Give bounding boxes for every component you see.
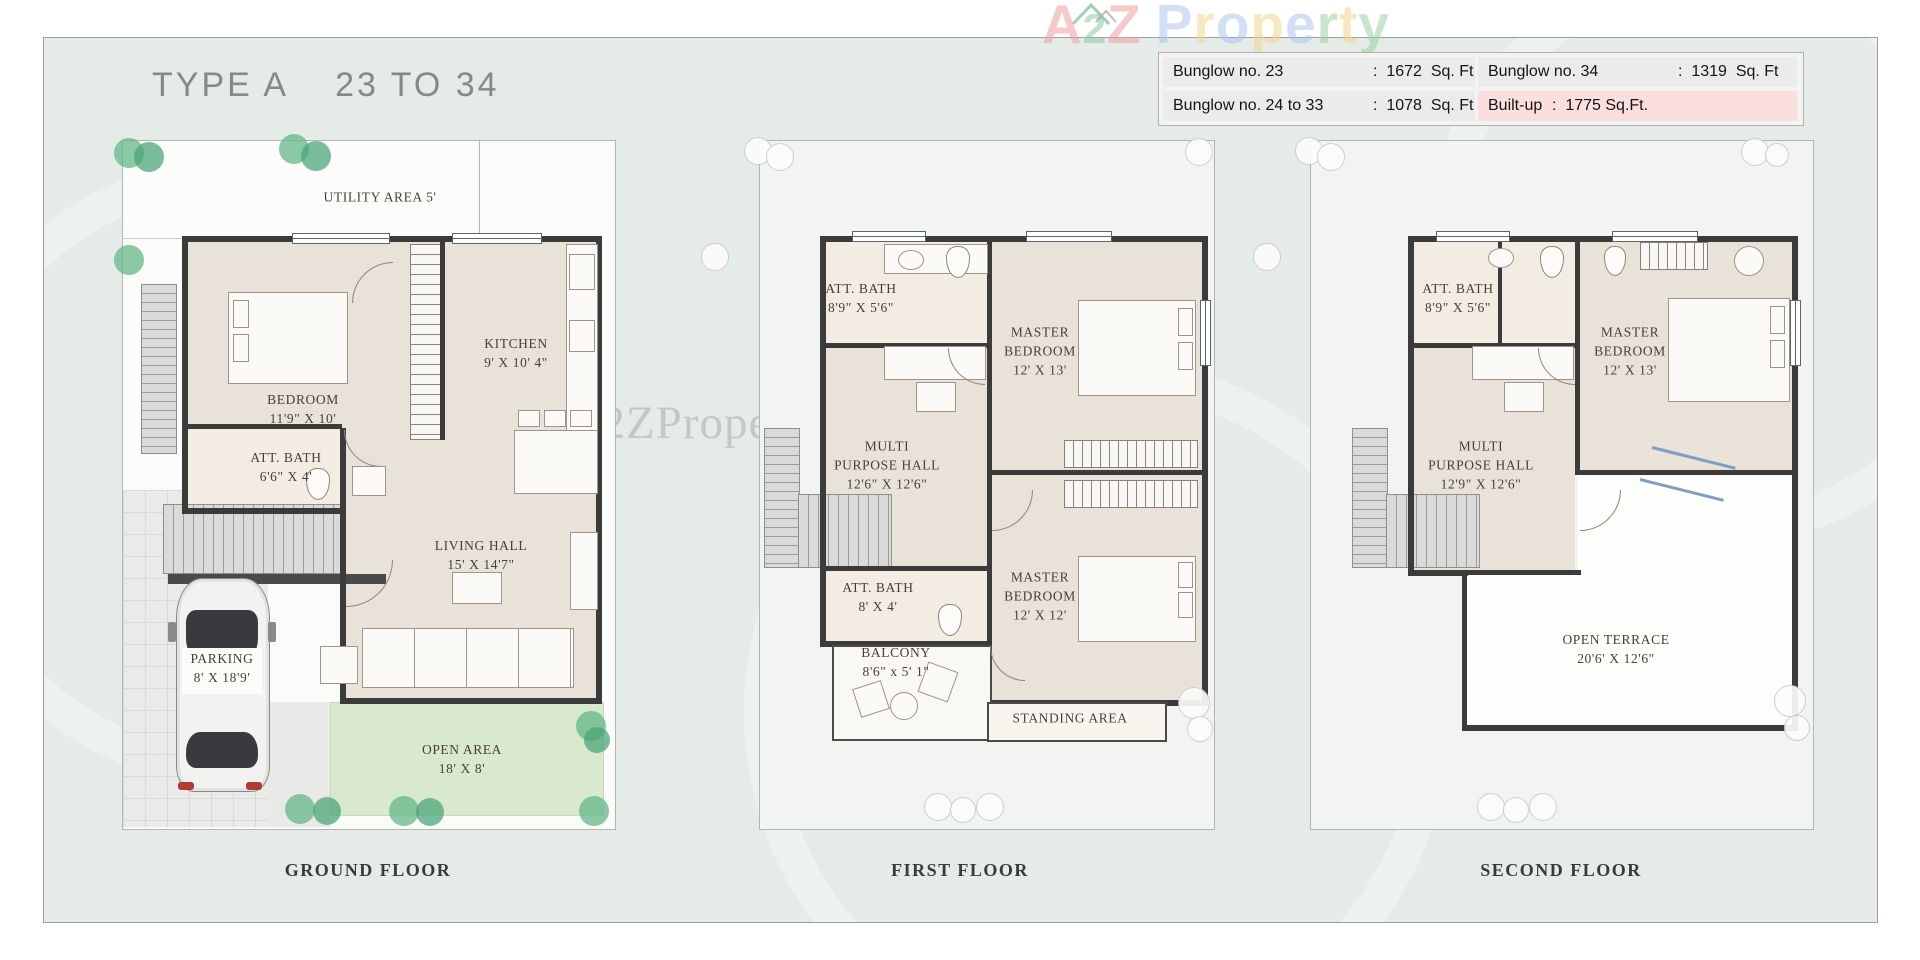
- tv-unit: [570, 532, 598, 610]
- wash-basin: [898, 250, 924, 270]
- room-label-balcony: BALCONY8'6" x 5' 1": [861, 644, 930, 682]
- room-label-open-terrace: OPEN TERRACE20'6' X 12'6": [1562, 631, 1669, 669]
- caption-first-floor: FIRST FLOOR: [891, 860, 1029, 881]
- car-mirror: [168, 622, 176, 642]
- wall: [440, 242, 445, 440]
- dining-chair: [518, 410, 540, 427]
- table-cell-bunglow-24-33: Bunglow no. 24 to 33: 1078 Sq. Ft: [1163, 91, 1475, 121]
- kitchen-sink: [569, 254, 595, 290]
- ottoman: [320, 646, 358, 684]
- logo-letter: y: [1358, 0, 1390, 55]
- cell-label: Bunglow no. 24 to 33: [1173, 97, 1373, 115]
- room-label-parking: PARKING8' X 18'9': [191, 650, 254, 688]
- window: [1436, 231, 1510, 242]
- entry-staircase: [163, 504, 343, 574]
- caption-second-floor: SECOND FLOOR: [1480, 860, 1642, 881]
- stove: [569, 320, 595, 352]
- cell-value: : 1775 Sq.Ft.: [1552, 97, 1648, 115]
- room-label-multi-purpose-hall: MULTIPURPOSE HALL12'6" X 12'6": [834, 438, 940, 495]
- room-label-living-hall: LIVING HALL15' X 14'7": [435, 537, 527, 575]
- cell-value: : 1078 Sq. Ft: [1373, 97, 1474, 115]
- tree-marker: [114, 245, 144, 275]
- staircase: [764, 428, 800, 568]
- shrub-marker: [1774, 685, 1806, 717]
- wall: [824, 566, 990, 571]
- cell-value: : 1319 Sq. Ft: [1678, 63, 1779, 81]
- dining-chair: [570, 410, 592, 427]
- logo-letter: P: [1156, 0, 1194, 55]
- shrub-marker: [1765, 143, 1789, 167]
- window: [1790, 300, 1801, 366]
- coffee-table: [452, 572, 502, 604]
- logo-letter: r: [1193, 0, 1215, 55]
- pillow: [1178, 342, 1193, 370]
- wall: [1408, 236, 1414, 576]
- shrub-marker: [976, 793, 1004, 821]
- caption-ground-floor: GROUND FLOOR: [285, 860, 452, 881]
- cell-label: Built-up: [1488, 97, 1552, 115]
- wardrobe: [1640, 242, 1708, 270]
- wardrobe: [410, 244, 442, 440]
- shrub-marker: [1178, 687, 1210, 719]
- window: [1200, 300, 1211, 366]
- floor-plan-sheet: TYPE A23 TO 34 A2ZProperty www.A2ZProper…: [0, 0, 1920, 960]
- table-cell-bunglow-23: Bunglow no. 23: 1672 Sq. Ft: [1163, 57, 1475, 87]
- shrub-marker: [1503, 797, 1529, 823]
- car-tail-light: [246, 782, 262, 790]
- cell-value: : 1672 Sq. Ft: [1373, 63, 1474, 81]
- wall: [1462, 570, 1467, 731]
- staircase: [1352, 428, 1388, 568]
- shrub-marker: [766, 143, 794, 171]
- wall: [1462, 725, 1798, 731]
- table-cell-built-up: Built-up: 1775 Sq.Ft.: [1478, 91, 1797, 121]
- wall: [1408, 570, 1468, 576]
- tree-marker: [313, 797, 341, 825]
- tree-marker: [416, 798, 444, 826]
- tree-marker: [285, 794, 315, 824]
- chair: [1734, 246, 1764, 276]
- shrub-marker: [924, 793, 952, 821]
- room-label-bedroom: BEDROOM11'9" X 10': [267, 391, 339, 429]
- room-label-master-bedroom: MASTERBEDROOM12' X 13': [1004, 324, 1076, 381]
- pillow: [1770, 340, 1785, 368]
- tree-marker: [584, 727, 610, 753]
- pillow: [1178, 592, 1193, 618]
- cell-label: Bunglow no. 23: [1173, 63, 1373, 81]
- room-label-standing-area: STANDING AREA: [1012, 710, 1127, 729]
- logo-letter: e: [1285, 0, 1317, 55]
- room-label-att-bath: ATT. BATH8'9" X 5'6": [1422, 280, 1493, 318]
- shrub-marker: [1253, 243, 1281, 271]
- room-label-utility-area: UTILITY AREA 5': [324, 189, 437, 208]
- side-staircase: [141, 284, 177, 454]
- tree-marker: [579, 796, 609, 826]
- shrub-marker: [1784, 715, 1810, 741]
- page-title: TYPE A23 TO 34: [152, 66, 500, 105]
- shrub-marker: [1317, 143, 1345, 171]
- wall: [1575, 236, 1580, 475]
- shrub-marker: [701, 243, 729, 271]
- wall: [987, 236, 992, 646]
- car-mirror: [268, 622, 276, 642]
- wall: [182, 508, 344, 514]
- wall: [1462, 570, 1581, 575]
- wash-basin: [352, 466, 386, 496]
- car-tail-light: [178, 782, 194, 790]
- wall: [340, 698, 602, 704]
- tree-marker: [301, 141, 331, 171]
- window: [1026, 231, 1112, 242]
- shrub-marker: [1185, 138, 1213, 166]
- wall: [1575, 470, 1798, 475]
- side-table: [916, 382, 956, 412]
- room-label-att-bath: ATT. BATH8' X 4': [842, 579, 913, 617]
- table-cell-bunglow-34: Bunglow no. 34: 1319 Sq. Ft: [1478, 57, 1797, 87]
- title-type: TYPE A: [152, 66, 289, 104]
- side-table: [1504, 382, 1544, 412]
- wardrobe: [1064, 480, 1198, 508]
- logo-house-roof-icon: [1070, 0, 1120, 26]
- room-label-multi-purpose-hall: MULTIPURPOSE HALL12'9" X 12'6": [1428, 438, 1534, 495]
- window: [452, 233, 542, 244]
- shrub-marker: [950, 797, 976, 823]
- logo-letter: t: [1339, 0, 1358, 55]
- window: [852, 231, 926, 242]
- car-rear-window: [186, 732, 258, 768]
- wall: [991, 470, 1203, 475]
- wall: [182, 236, 188, 514]
- room-label-master-bedroom: MASTERBEDROOM12' X 13': [1594, 324, 1666, 381]
- room-label-open-area: OPEN AREA18' X 8': [422, 741, 502, 779]
- window: [1612, 231, 1698, 242]
- wash-basin: [1488, 248, 1514, 268]
- title-range: 23 TO 34: [335, 66, 500, 104]
- logo-letter: p: [1250, 0, 1285, 55]
- staircase: [1386, 494, 1480, 568]
- logo-letter: o: [1216, 0, 1251, 55]
- dining-chair: [544, 410, 566, 427]
- pillow: [1178, 562, 1193, 588]
- tree-marker: [134, 142, 164, 172]
- shrub-marker: [1529, 793, 1557, 821]
- sofa: [362, 628, 574, 688]
- room-label-att-bath: ATT. BATH6'6" X 4': [250, 449, 321, 487]
- shrub-marker: [1187, 716, 1213, 742]
- room-label-kitchen: KITCHEN9' X 10' 4": [484, 335, 548, 373]
- cell-label: Bunglow no. 34: [1488, 63, 1678, 81]
- pillow: [233, 334, 249, 362]
- logo-letter: r: [1317, 0, 1339, 55]
- room-label-master-bedroom: MASTERBEDROOM12' X 12': [1004, 569, 1076, 626]
- pillow: [233, 300, 249, 328]
- staircase: [798, 494, 892, 568]
- balcony-table: [890, 692, 918, 720]
- pillow: [1178, 308, 1193, 336]
- room-label-att-bath: ATT. BATH8'9" X 5'6": [825, 280, 896, 318]
- pillow: [1770, 306, 1785, 334]
- shrub-marker: [1477, 793, 1505, 821]
- wardrobe: [1064, 440, 1198, 468]
- tree-marker: [389, 796, 419, 826]
- window: [292, 233, 390, 244]
- dining-table: [514, 430, 598, 494]
